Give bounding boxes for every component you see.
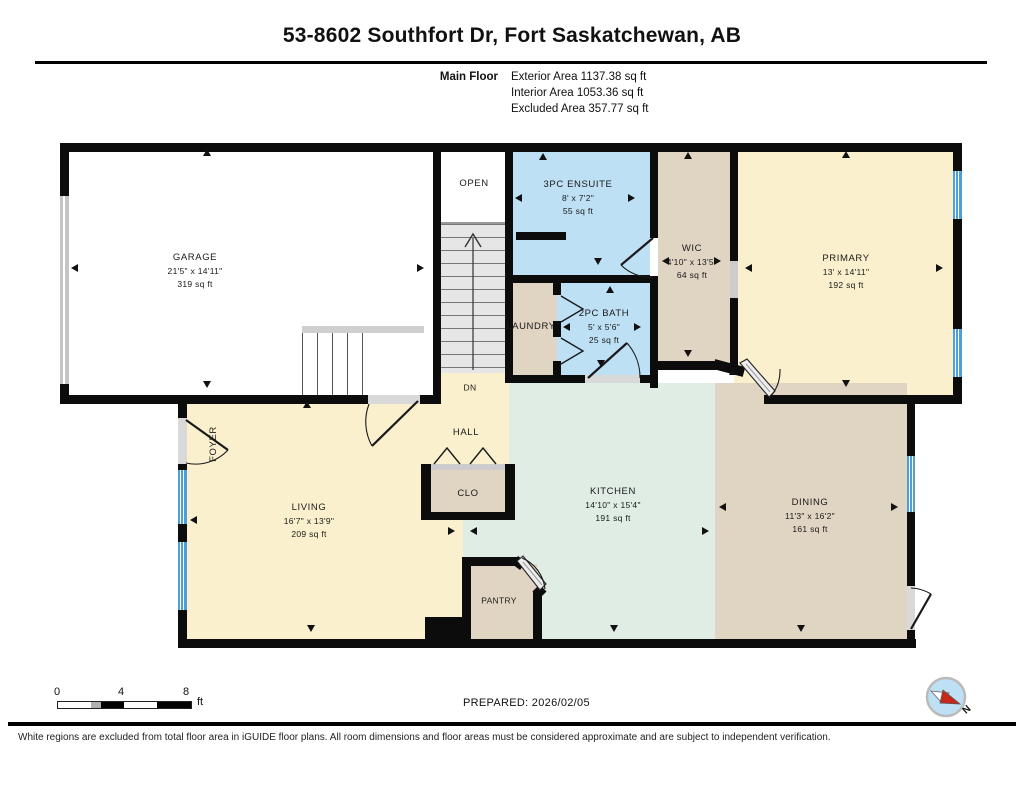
room-label-open: OPEN [459,177,488,191]
room-label-wic: WIC 4'10" x 13'5" 64 sq ft [667,242,718,282]
dimension-arrow [417,264,424,272]
wall-segment [907,402,915,456]
wall-segment [178,639,916,648]
dimension-arrow [729,368,737,375]
scale-segment [91,702,101,708]
dimension-arrow [842,151,850,158]
scale-bar: 0 4 8 ft [57,686,217,714]
room-label-clo: CLO [457,487,478,501]
wall-segment [907,512,915,586]
dimension-arrow [470,527,477,535]
room-label-pantry: PANTRY [481,595,517,608]
prepared-date: PREPARED: 2026/02/05 [463,697,590,709]
room-label-dn: DN [464,382,477,395]
dimension-arrow [71,264,78,272]
dimension-arrow [891,503,898,511]
footer-divider [8,722,1016,726]
scale-bar-ruler [57,701,192,709]
room-label-garage: GARAGE 21'5" x 14'11" 319 sq ft [168,251,223,291]
scale-segment [58,702,91,708]
wall-segment [553,283,561,295]
wall-segment [421,512,515,520]
dimension-arrow [203,149,211,156]
wall-segment [730,298,738,368]
dimension-arrow [539,153,547,160]
scale-segment [124,702,157,708]
wall-segment [533,592,542,648]
scale-segment [101,702,124,708]
dimension-arrow [303,401,311,408]
dimension-arrow [448,527,455,535]
dimension-arrow [515,194,522,202]
room-label-ensuite: 3PC ENSUITE 8' x 7'2" 55 sq ft [544,178,613,218]
window [907,456,915,512]
wall-segment [764,395,962,404]
room-label-dining: DINING 11'3" x 16'2" 161 sq ft [785,496,835,536]
dimension-arrow [745,264,752,272]
scale-unit: ft [197,696,203,708]
door-threshold [585,375,640,383]
dimension-arrow [203,381,211,388]
kitchen-floor-nook [463,518,509,558]
exterior-area-stat: Exterior Area 1137.38 sq ft [511,71,771,83]
scale-tick-8: 8 [183,686,189,698]
dimension-arrow [702,527,709,535]
door-opening [650,238,658,276]
room-label-hall: HALL [453,426,479,440]
wall-segment [462,557,518,566]
scale-tick-0: 0 [54,686,60,698]
garage-steps [302,333,366,395]
wall-segment [730,150,738,261]
page-title: 53-8602 Southfort Dr, Fort Saskatchewan,… [0,24,1024,48]
dimension-arrow [307,625,315,632]
compass-north-label: N [961,703,974,716]
window [178,542,187,610]
room-label-living: LIVING 16'7" x 13'9" 209 sq ft [284,501,335,541]
garage-step-landing [302,326,424,333]
floor-label: Main Floor [330,71,498,83]
wall-segment [650,361,718,370]
dimension-arrow [610,625,618,632]
room-label-primary: PRIMARY 13' x 14'11" 192 sq ft [822,252,869,292]
door-threshold [368,395,420,404]
wall-block [425,617,463,641]
dimension-arrow [842,380,850,387]
door-threshold [907,586,915,630]
header-rule [35,61,987,64]
wall-segment [60,395,368,404]
wall-segment [640,375,658,383]
dimension-arrow [797,625,805,632]
scale-tick-4: 4 [118,686,124,698]
window [953,171,962,219]
wall-segment [505,150,513,383]
closet-track [431,464,505,470]
dimension-arrow [597,360,605,367]
wall-segment [505,375,585,383]
dimension-arrow [594,258,602,265]
dimension-arrow [628,194,635,202]
room-label-kitchen: KITCHEN 14'10" x 15'4" 191 sq ft [585,485,641,525]
entry-threshold [178,418,187,464]
dimension-arrow [563,323,570,331]
excluded-area-stat: Excluded Area 357.77 sq ft [511,103,771,115]
room-label-foyer: FOYER [207,426,221,462]
disclaimer-text: White regions are excluded from total fl… [18,732,1008,743]
dimension-arrow [719,503,726,511]
wall-segment [516,232,566,240]
dimension-arrow [714,257,721,265]
dimension-arrow [684,152,692,159]
compass: N [922,674,982,724]
wall-segment [433,150,441,404]
dimension-arrow [684,350,692,357]
garage-floor [64,147,437,399]
dimension-arrow [606,286,614,293]
dimension-arrow [936,264,943,272]
dimension-arrow [662,257,669,265]
scale-segment [157,702,191,708]
room-label-bath: 2PC BATH 5' x 5'6" 25 sq ft [579,307,630,347]
interior-area-stat: Interior Area 1053.36 sq ft [511,87,771,99]
dimension-arrow [190,516,197,524]
wall-segment [505,275,658,283]
dimension-arrow [634,323,641,331]
staircase [441,224,505,373]
cased-opening [730,261,738,298]
window [178,470,187,524]
wall-segment [907,630,915,648]
garage-door [60,196,69,384]
wall-segment [462,557,471,648]
window [953,329,962,377]
room-label-laundry: LAUNDRY [506,320,555,334]
